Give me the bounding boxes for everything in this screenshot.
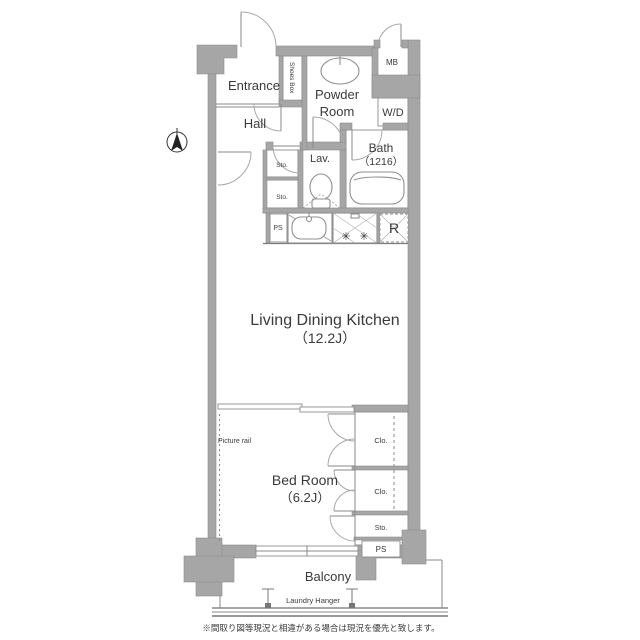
- wall-top-left-pier: [197, 45, 237, 74]
- balcony-label: Balcony: [305, 569, 352, 584]
- storage-upper-label: Sto.: [276, 162, 288, 169]
- hall-label: Hall: [244, 116, 267, 131]
- entrance-label: Entrance: [228, 78, 280, 93]
- pipe-space-bedroom-label: PS: [376, 545, 387, 554]
- floor-plan-page: ✳ ✳: [0, 0, 640, 640]
- closet-door-arc: [328, 439, 355, 466]
- storage-lower-label: Sto.: [276, 194, 288, 201]
- burner-icon: ✳: [341, 231, 350, 243]
- closet-lower-label: Clo.: [374, 487, 387, 496]
- meter-box-door-arc: [378, 24, 401, 47]
- laundry-hanger-foot: [349, 603, 355, 608]
- picture-rail-label: Picture rail: [218, 438, 252, 445]
- north-indicator: [167, 128, 187, 152]
- meter-box-label: MB: [386, 58, 398, 67]
- refrigerator-label: R: [389, 220, 399, 236]
- floor-plan-svg: ✳ ✳: [0, 0, 640, 640]
- powder-room-label: Powder: [315, 87, 360, 102]
- faucet: [307, 217, 312, 222]
- lavatory-label: Lav.: [310, 153, 330, 165]
- closet-door-arc: [334, 490, 355, 511]
- ldk-label: Living Dining Kitchen: [250, 312, 399, 329]
- wall-top: [276, 46, 376, 56]
- storage-door-arc: [330, 516, 355, 541]
- laundry-hanger-label: Laundry Hanger: [286, 596, 340, 605]
- corridor-door-arc: [218, 152, 251, 185]
- sliding-partition-panel: [218, 404, 302, 409]
- laundry-hanger-foot: [265, 603, 271, 608]
- wall-left: [208, 74, 216, 558]
- storage-bedroom-label: Sto.: [375, 525, 388, 532]
- washer-dryer-label: W/D: [382, 107, 403, 119]
- closet-upper-label: Clo.: [374, 436, 387, 445]
- bath-size-label: （1216）: [359, 156, 403, 168]
- floorplan-note: ※間取り図等現況と相違がある場合は現況を優先と致します。: [202, 623, 439, 633]
- closet-door-arc: [328, 414, 355, 441]
- burner-icon: ✳: [359, 231, 368, 243]
- wall-right-foot: [402, 530, 426, 564]
- pipe-space-kitchen-label: PS: [273, 225, 283, 232]
- shoes-box-label: Shoes Box: [288, 62, 295, 94]
- bath-label: Bath: [369, 141, 394, 155]
- bedroom-size-label: （6.2J）: [280, 490, 331, 505]
- entrance-door-arc: [241, 12, 276, 47]
- sliding-partition-panel: [300, 407, 354, 412]
- ldk-size-label: （12.2J）: [294, 330, 356, 346]
- bedroom-label: Bed Room: [272, 472, 338, 488]
- svg-text:Room: Room: [320, 104, 355, 119]
- wall-right: [408, 40, 420, 562]
- toilet: [310, 174, 332, 200]
